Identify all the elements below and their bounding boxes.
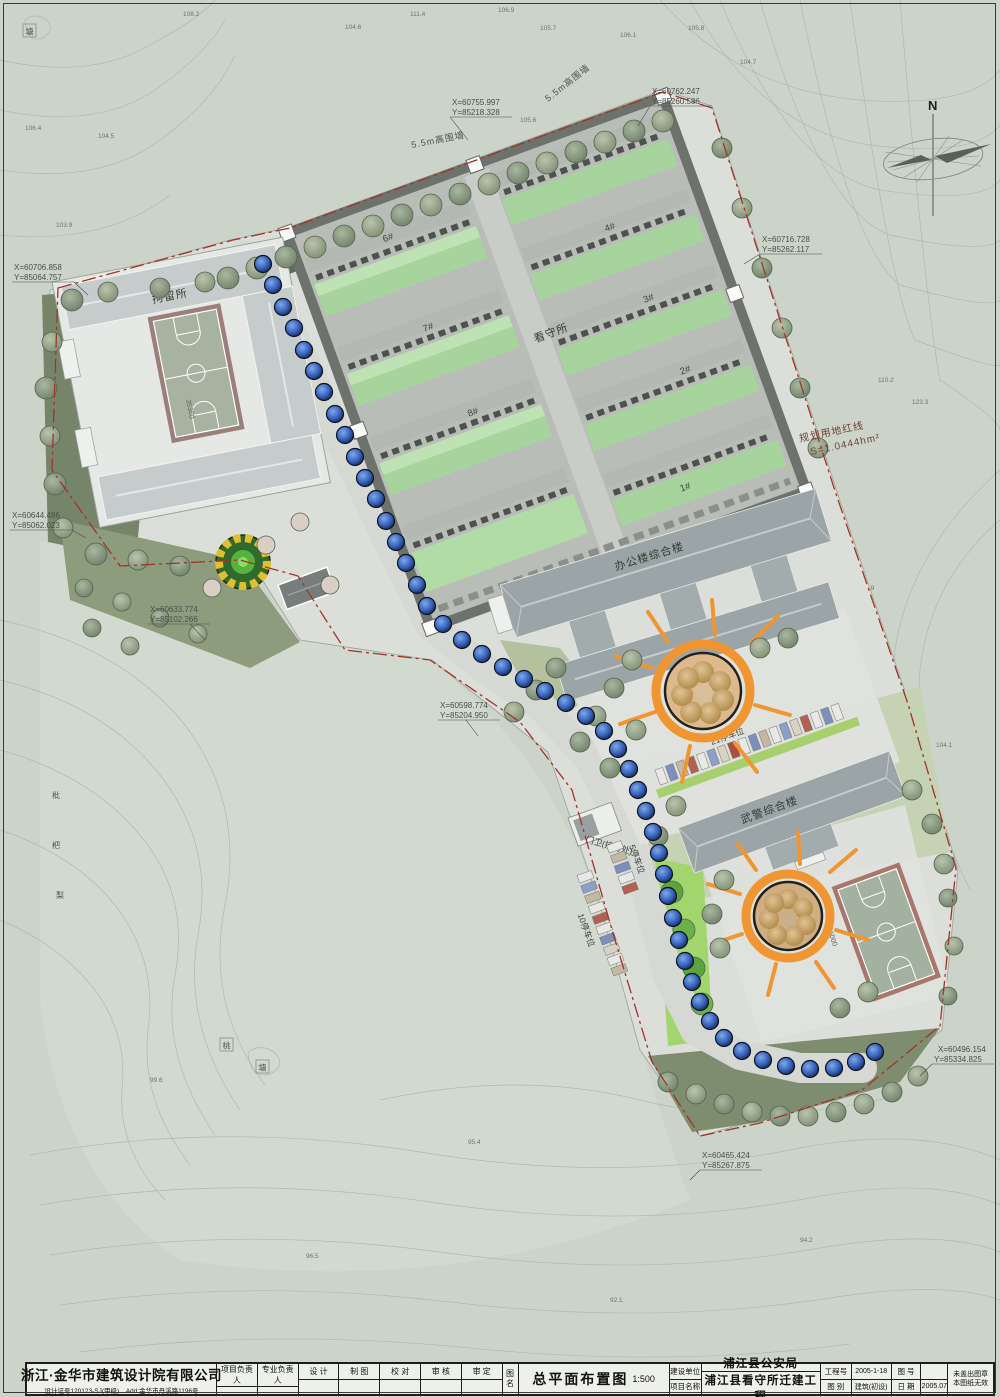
checker-value: [380, 1380, 420, 1395]
reviewer-label: 审 核: [421, 1364, 461, 1380]
svg-text:X=60465.424: X=60465.424: [702, 1151, 750, 1160]
reviewer-cell: 审 核: [421, 1364, 462, 1394]
svg-text:塘: 塘: [259, 1063, 267, 1073]
svg-text:Y=85102.266: Y=85102.266: [150, 615, 198, 624]
svg-text:99.6: 99.6: [150, 1077, 163, 1084]
north-label: N: [928, 98, 937, 113]
drawing-scale: 1:500: [632, 1374, 655, 1384]
drawing-name-label-char1: 图: [506, 1369, 514, 1379]
site-plan-drawing: 108.2 111.4 104.6 106.9 105.7 106.1 105.…: [0, 0, 1000, 1397]
designer-cell: 设 计: [299, 1364, 340, 1394]
discipline-lead-label: 专业负责人: [258, 1364, 298, 1387]
svg-text:杷: 杷: [52, 840, 60, 850]
approver-value: [462, 1380, 502, 1395]
svg-text:95.4: 95.4: [468, 1139, 481, 1146]
drafter-value: [339, 1380, 379, 1395]
project-lead-value: [217, 1387, 257, 1394]
svg-text:111.4: 111.4: [410, 11, 426, 18]
sheet-number-labels-cell: 图 号 日 期: [892, 1364, 922, 1394]
sheet-number-value: [921, 1364, 947, 1380]
svg-text:Y=85334.825: Y=85334.825: [934, 1055, 982, 1064]
svg-text:104.1: 104.1: [936, 742, 953, 749]
validity-note-line1: 未盖出图章: [953, 1370, 988, 1379]
discipline-lead-cell: 专业负责人: [258, 1364, 299, 1394]
svg-text:110.2: 110.2: [878, 377, 894, 384]
drawing-category-label: 图 别: [821, 1380, 851, 1395]
svg-text:枇: 枇: [52, 790, 60, 800]
svg-text:X=60496.154: X=60496.154: [938, 1045, 986, 1054]
job-number-labels-cell: 工程号 图 别: [821, 1364, 852, 1394]
project-name-value: 浦江县看守所迁建工程: [702, 1372, 820, 1397]
drafter-cell: 制 图: [339, 1364, 380, 1394]
project-name-label: 项目名称: [670, 1380, 701, 1395]
drafter-label: 制 图: [339, 1364, 379, 1380]
svg-text:106.9: 106.9: [498, 7, 515, 14]
svg-text:92.1: 92.1: [610, 1297, 623, 1304]
svg-text:108.2: 108.2: [183, 11, 200, 18]
svg-text:Y=85260.586: Y=85260.586: [652, 97, 700, 106]
design-firm-cert: 设计证号120123-SJ(甲级) Add:金华市丹溪路1196号: [44, 1385, 198, 1395]
reviewer-value: [421, 1380, 461, 1395]
svg-text:X=60706.858: X=60706.858: [14, 263, 62, 272]
date-label: 日 期: [892, 1380, 921, 1395]
svg-text:104.5: 104.5: [98, 133, 115, 140]
svg-text:106.4: 106.4: [25, 125, 42, 132]
job-number-values-cell: 2005-1-18 建筑(初设): [852, 1364, 892, 1394]
svg-text:105.6: 105.6: [520, 117, 537, 124]
svg-text:Y=85062.023: Y=85062.023: [12, 521, 60, 530]
designer-value: [299, 1380, 339, 1395]
drawing-name-label-cell: 图 名: [503, 1364, 519, 1394]
approver-cell: 审 定: [462, 1364, 503, 1394]
svg-text:103.9: 103.9: [56, 222, 73, 229]
svg-text:94.2: 94.2: [800, 1237, 813, 1244]
svg-text:105.8: 105.8: [688, 25, 705, 32]
svg-text:X=60755.997: X=60755.997: [452, 98, 500, 107]
designer-label: 设 计: [299, 1364, 339, 1380]
validity-note-cell: 未盖出图章 本图纸无效: [948, 1364, 993, 1394]
svg-text:X=60716.728: X=60716.728: [762, 235, 810, 244]
validity-note-line2: 本图纸无效: [953, 1379, 988, 1388]
discipline-lead-value: [258, 1387, 298, 1394]
sheet-number-label: 图 号: [892, 1364, 921, 1380]
svg-text:X=60762.247: X=60762.247: [652, 87, 700, 96]
checker-cell: 校 对: [380, 1364, 421, 1394]
svg-text:梨: 梨: [56, 890, 64, 900]
svg-text:96.5: 96.5: [306, 1253, 319, 1260]
project-lead-label: 项目负责人: [217, 1364, 257, 1387]
owner-labels-cell: 建设单位 项目名称: [670, 1364, 702, 1394]
svg-text:105.7: 105.7: [540, 25, 557, 32]
svg-text:塘: 塘: [26, 27, 34, 37]
drawing-title-cell: 总平面布置图 1:500: [519, 1364, 670, 1394]
owner-value: 浦江县公安局: [702, 1355, 820, 1372]
job-number-label: 工程号: [821, 1364, 851, 1380]
project-lead-cell: 项目负责人: [217, 1364, 258, 1394]
svg-text:Y=85267.875: Y=85267.875: [702, 1161, 750, 1170]
drawing-name-label-char2: 名: [506, 1379, 514, 1389]
title-block: 浙江·金华市建筑设计院有限公司 设计证号120123-SJ(甲级) Add:金华…: [25, 1362, 995, 1396]
svg-text:123.3: 123.3: [912, 399, 929, 406]
job-number-value: 2005-1-18: [852, 1364, 891, 1380]
drawing-category-value: 建筑(初设): [852, 1380, 891, 1395]
svg-text:104.7: 104.7: [740, 59, 757, 66]
checker-label: 校 对: [380, 1364, 420, 1380]
svg-text:X=60644.486: X=60644.486: [12, 511, 60, 520]
svg-text:106.1: 106.1: [620, 32, 637, 39]
svg-text:X=60598.774: X=60598.774: [440, 701, 488, 710]
svg-text:Y=85218.328: Y=85218.328: [452, 108, 500, 117]
owner-label: 建设单位: [670, 1364, 701, 1380]
approver-label: 审 定: [462, 1364, 502, 1380]
svg-text:桃: 桃: [223, 1041, 231, 1051]
svg-text:Y=85064.757: Y=85064.757: [14, 273, 62, 282]
sheet-number-values-cell: 2005.07: [921, 1364, 948, 1394]
design-firm-name: 浙江·金华市建筑设计院有限公司: [21, 1364, 222, 1384]
drawing-title: 总平面布置图: [532, 1369, 628, 1389]
svg-text:Y=85262.117: Y=85262.117: [762, 245, 810, 254]
svg-text:104.6: 104.6: [345, 24, 362, 31]
site-plan-sheet: 108.2 111.4 104.6 106.9 105.7 106.1 105.…: [0, 0, 1000, 1397]
design-firm-cell: 浙江·金华市建筑设计院有限公司 设计证号120123-SJ(甲级) Add:金华…: [27, 1364, 217, 1394]
date-value: 2005.07: [921, 1380, 947, 1395]
owner-values-cell: 浦江县公安局 浦江县看守所迁建工程: [702, 1364, 821, 1394]
svg-text:Y=85204.950: Y=85204.950: [440, 711, 488, 720]
svg-text:X=60633.774: X=60633.774: [150, 605, 198, 614]
